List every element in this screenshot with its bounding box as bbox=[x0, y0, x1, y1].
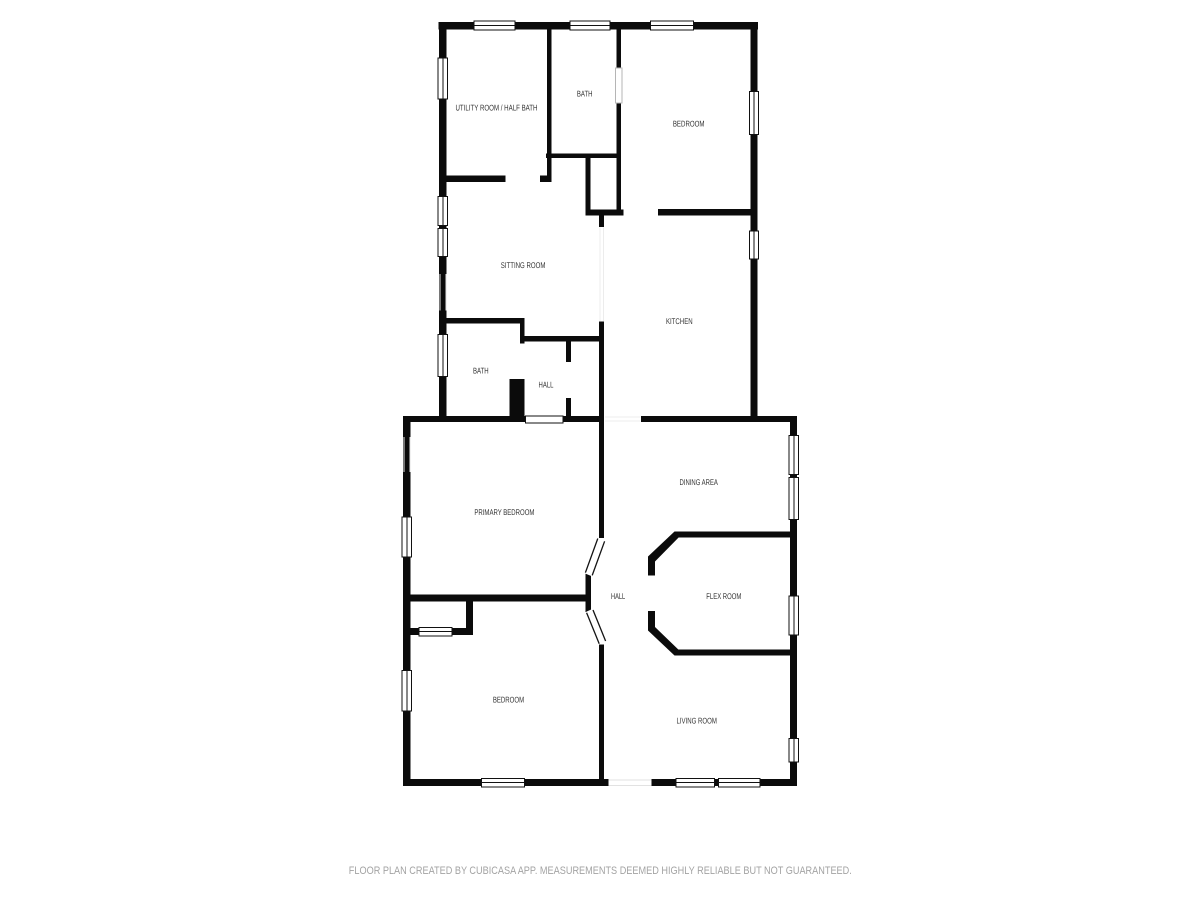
svg-text:KITCHEN: KITCHEN bbox=[666, 316, 693, 326]
svg-text:PRIMARY BEDROOM: PRIMARY BEDROOM bbox=[474, 507, 534, 517]
svg-text:SITTING ROOM: SITTING ROOM bbox=[501, 260, 546, 270]
svg-text:FLEX ROOM: FLEX ROOM bbox=[706, 591, 741, 601]
svg-text:UTILITY ROOM / HALF BATH: UTILITY ROOM / HALF BATH bbox=[456, 103, 538, 113]
svg-text:DINING AREA: DINING AREA bbox=[680, 477, 719, 487]
svg-text:HALL: HALL bbox=[611, 591, 625, 601]
svg-text:BATH: BATH bbox=[473, 366, 489, 376]
svg-text:BATH: BATH bbox=[577, 88, 593, 98]
svg-text:FLOOR PLAN CREATED BY CUBICASA: FLOOR PLAN CREATED BY CUBICASA APP. MEAS… bbox=[349, 865, 852, 877]
svg-text:BEDROOM: BEDROOM bbox=[493, 694, 524, 704]
svg-text:HALL: HALL bbox=[539, 380, 554, 390]
svg-text:LIVING ROOM: LIVING ROOM bbox=[677, 716, 717, 726]
svg-text:BEDROOM: BEDROOM bbox=[673, 119, 705, 129]
